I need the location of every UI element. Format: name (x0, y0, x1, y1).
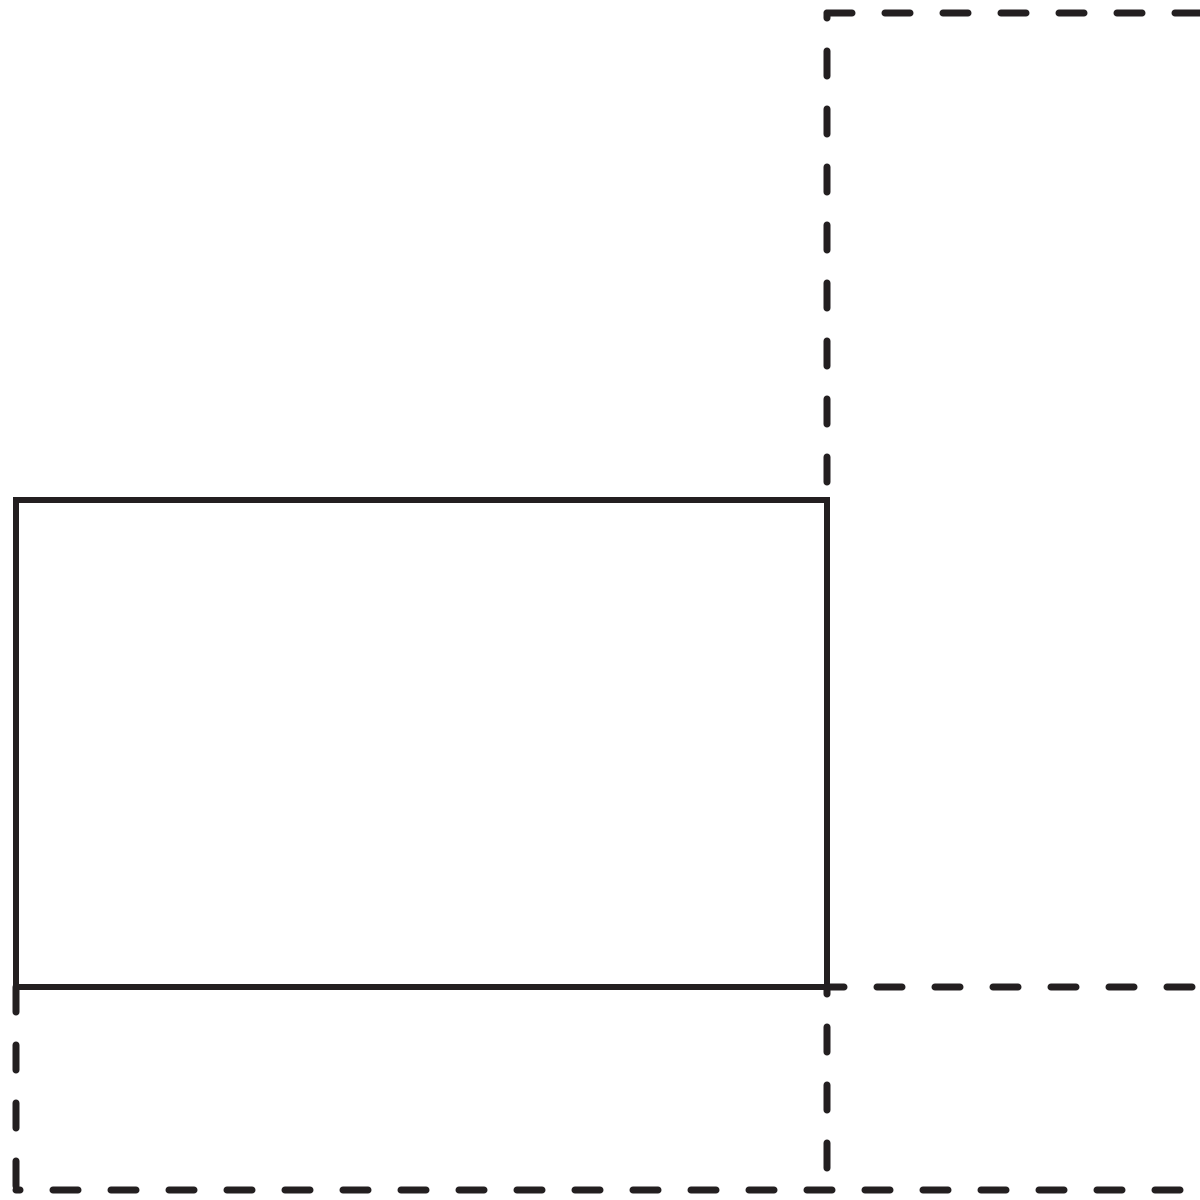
geometry-figure (0, 0, 1200, 1200)
figure-container (0, 0, 1200, 1200)
solid-rectangle (16, 500, 827, 987)
